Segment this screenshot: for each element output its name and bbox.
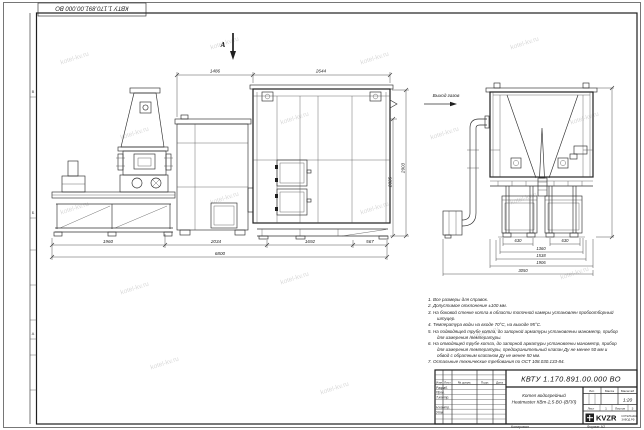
gas-outlet-label: Выход газов bbox=[433, 93, 460, 98]
dim-label: 2034 bbox=[210, 239, 222, 244]
dim-label: 3050 bbox=[518, 268, 528, 273]
note-item: 6. На отводящей трубе котла, до запорной… bbox=[428, 341, 618, 359]
dim-label: 1360 bbox=[536, 246, 546, 251]
tb-row-prov: Пров. bbox=[436, 391, 445, 395]
tb-sheet-value: 1 bbox=[605, 406, 607, 410]
dim-label: 1960 bbox=[103, 239, 114, 244]
end-view: Выход газов bbox=[424, 83, 597, 238]
tb-scale-label: Масштаб bbox=[621, 389, 634, 393]
note-item: 1. Все размеры для справок. bbox=[428, 297, 618, 303]
tb-sheets-value: 3 bbox=[632, 406, 634, 410]
view-marker-letter: А bbox=[220, 41, 226, 49]
note-item: 5. На подводящей трубе котла, до запорно… bbox=[428, 329, 618, 341]
dim-label: 2644 bbox=[315, 69, 327, 74]
tb-product-name-1: Котел водогрейный bbox=[522, 392, 566, 398]
title-block: Изм Лист № докум. Подп. Дата Разраб. Про… bbox=[435, 370, 638, 424]
note-item: 3. На боковой стенке котла в области топ… bbox=[428, 310, 618, 322]
kvzr-logo-sub1: КОТЕЛЬНЫЙ bbox=[622, 414, 638, 418]
format-label: Формат А2 bbox=[587, 425, 605, 429]
stamp-doc-number: КВТУ 1.170.891.00.000 ВО bbox=[55, 5, 129, 11]
tb-mass-label: Масса bbox=[605, 389, 614, 393]
tb-col-doc: № докум. bbox=[458, 381, 472, 385]
side-view bbox=[52, 85, 397, 239]
dim-label: 2903 bbox=[401, 162, 406, 174]
tb-doc-number: КВТУ 1.170.891.00.000 ВО bbox=[521, 375, 621, 384]
tb-row-tkontr: Т.контр. bbox=[436, 396, 449, 400]
drawing-sheet: kotel-kv.ru kotel-kv.ru kotel-kv.ru kote… bbox=[0, 0, 644, 430]
zone-letter: В bbox=[32, 89, 35, 94]
tb-scale-value: 1:20 bbox=[623, 398, 633, 404]
kvzr-logo-sub2: ЗАВОД.РФ bbox=[622, 418, 635, 422]
tb-product-name-2: Heatmaster КВт-2,5-ВО-(ВПЛ) bbox=[512, 400, 577, 405]
tb-col-izm: Изм bbox=[436, 381, 442, 385]
tb-col-list: Лист bbox=[444, 381, 451, 385]
dim-label: 1538 bbox=[536, 253, 546, 258]
kvzr-logo: KVZR КОТЕЛЬНЫЙ ЗАВОД.РФ bbox=[586, 414, 638, 423]
tb-row-razrab: Разраб. bbox=[436, 386, 448, 390]
technical-notes: 1. Все размеры для справок. 2. Допустимо… bbox=[428, 297, 618, 366]
dim-label: 6800 bbox=[215, 251, 226, 256]
tb-col-date: Дата bbox=[496, 381, 503, 385]
dim-label: 1906 bbox=[536, 260, 546, 265]
zone-letter: Б bbox=[32, 210, 35, 215]
tb-row-nkontr: Н.контр. bbox=[436, 405, 450, 409]
tb-sheet-label: Лист bbox=[588, 406, 595, 410]
tb-lit-label: Лит. bbox=[589, 389, 595, 393]
tb-col-sign: Подп. bbox=[481, 381, 489, 385]
view-marker: А bbox=[220, 33, 236, 60]
dim-label: 630 bbox=[562, 238, 570, 243]
side-view-dimensions: 1486 2644 1960 2034 1692 567 6800 bbox=[50, 69, 409, 261]
dim-label: 567 bbox=[366, 239, 374, 244]
tb-sheets-label: Листов bbox=[615, 406, 625, 410]
note-item: 7. Остальные технические требования по О… bbox=[428, 359, 618, 365]
dim-label: 630 bbox=[515, 238, 523, 243]
copied-label: Копировал bbox=[511, 425, 529, 429]
zone-letter: А bbox=[32, 331, 35, 336]
dim-label: 2335 bbox=[388, 176, 393, 188]
note-item: 2. Допустимое отклонение ±100 мм. bbox=[428, 303, 618, 309]
kvzr-logo-text: KVZR bbox=[596, 414, 617, 423]
dim-label: 1486 bbox=[210, 69, 221, 74]
tb-row-utv: Утв. bbox=[436, 410, 444, 414]
note-item: 4. Температура воды на входе 70°С, на вы… bbox=[428, 322, 618, 328]
dim-label: 1692 bbox=[305, 239, 316, 244]
